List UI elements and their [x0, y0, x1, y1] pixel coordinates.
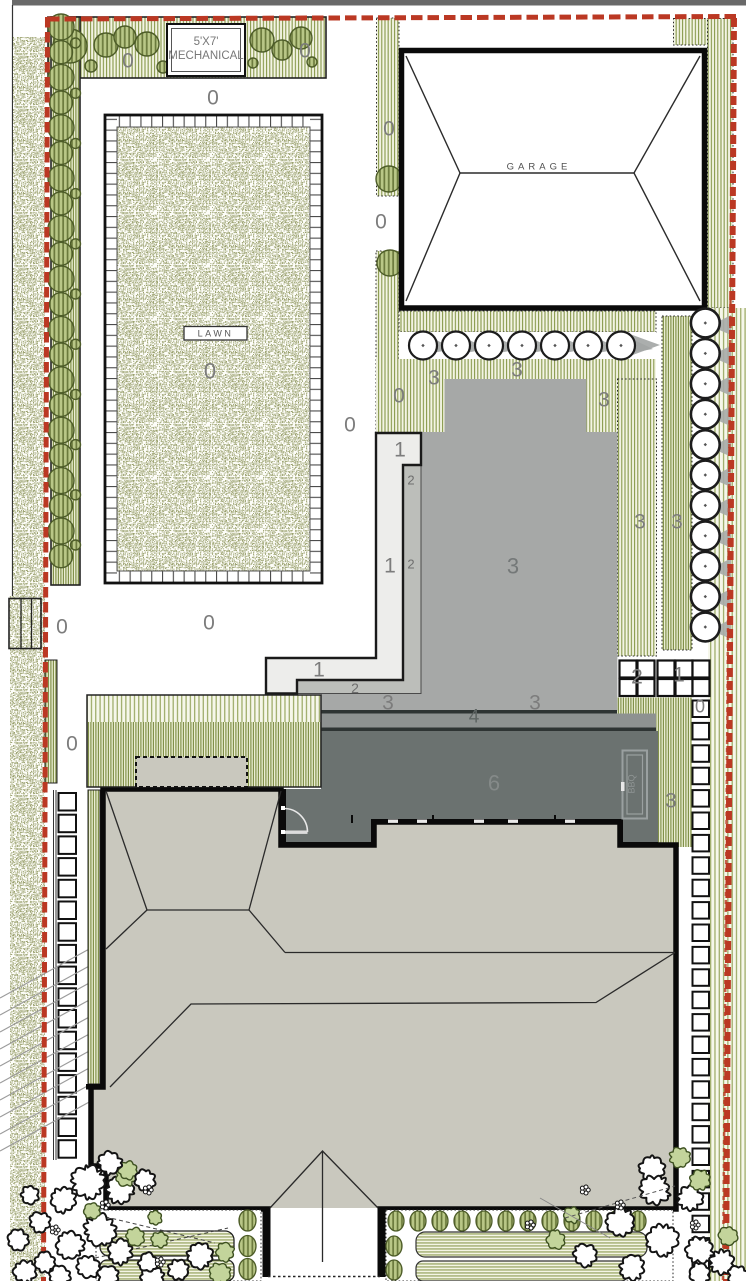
svg-text:BBQ: BBQ	[627, 774, 637, 793]
svg-text:0: 0	[375, 210, 387, 233]
svg-text:2: 2	[351, 680, 359, 696]
svg-text:LAWN: LAWN	[198, 329, 234, 339]
svg-text:3: 3	[529, 691, 541, 714]
svg-text:0: 0	[56, 615, 68, 638]
svg-text:3: 3	[428, 366, 440, 389]
svg-text:3: 3	[598, 388, 610, 411]
svg-text:0: 0	[383, 117, 395, 140]
svg-text:3: 3	[507, 554, 519, 579]
svg-text:0: 0	[122, 49, 134, 72]
svg-text:5'X7': 5'X7'	[194, 36, 219, 48]
svg-text:0: 0	[203, 611, 215, 634]
svg-text:2: 2	[631, 665, 643, 688]
svg-text:6: 6	[488, 771, 500, 796]
svg-text:3: 3	[382, 691, 394, 714]
svg-text:0: 0	[299, 39, 311, 62]
svg-text:3: 3	[671, 510, 683, 533]
svg-text:1: 1	[313, 658, 325, 681]
svg-text:0: 0	[66, 732, 78, 755]
svg-text:0: 0	[393, 384, 405, 407]
svg-text:3: 3	[511, 358, 523, 381]
svg-text:0: 0	[207, 86, 219, 109]
svg-text:0: 0	[695, 696, 705, 716]
svg-text:1: 1	[384, 554, 396, 577]
svg-text:GARAGE: GARAGE	[507, 162, 572, 173]
svg-text:0: 0	[204, 359, 216, 384]
svg-text:4: 4	[469, 707, 480, 728]
svg-text:3: 3	[634, 510, 646, 533]
svg-text:3: 3	[665, 789, 677, 812]
svg-text:1: 1	[394, 438, 406, 461]
svg-text:1: 1	[673, 663, 685, 686]
svg-text:MECHANICAL: MECHANICAL	[168, 50, 244, 62]
svg-text:2: 2	[407, 473, 414, 488]
svg-text:0: 0	[344, 413, 356, 436]
svg-text:2: 2	[407, 557, 414, 572]
